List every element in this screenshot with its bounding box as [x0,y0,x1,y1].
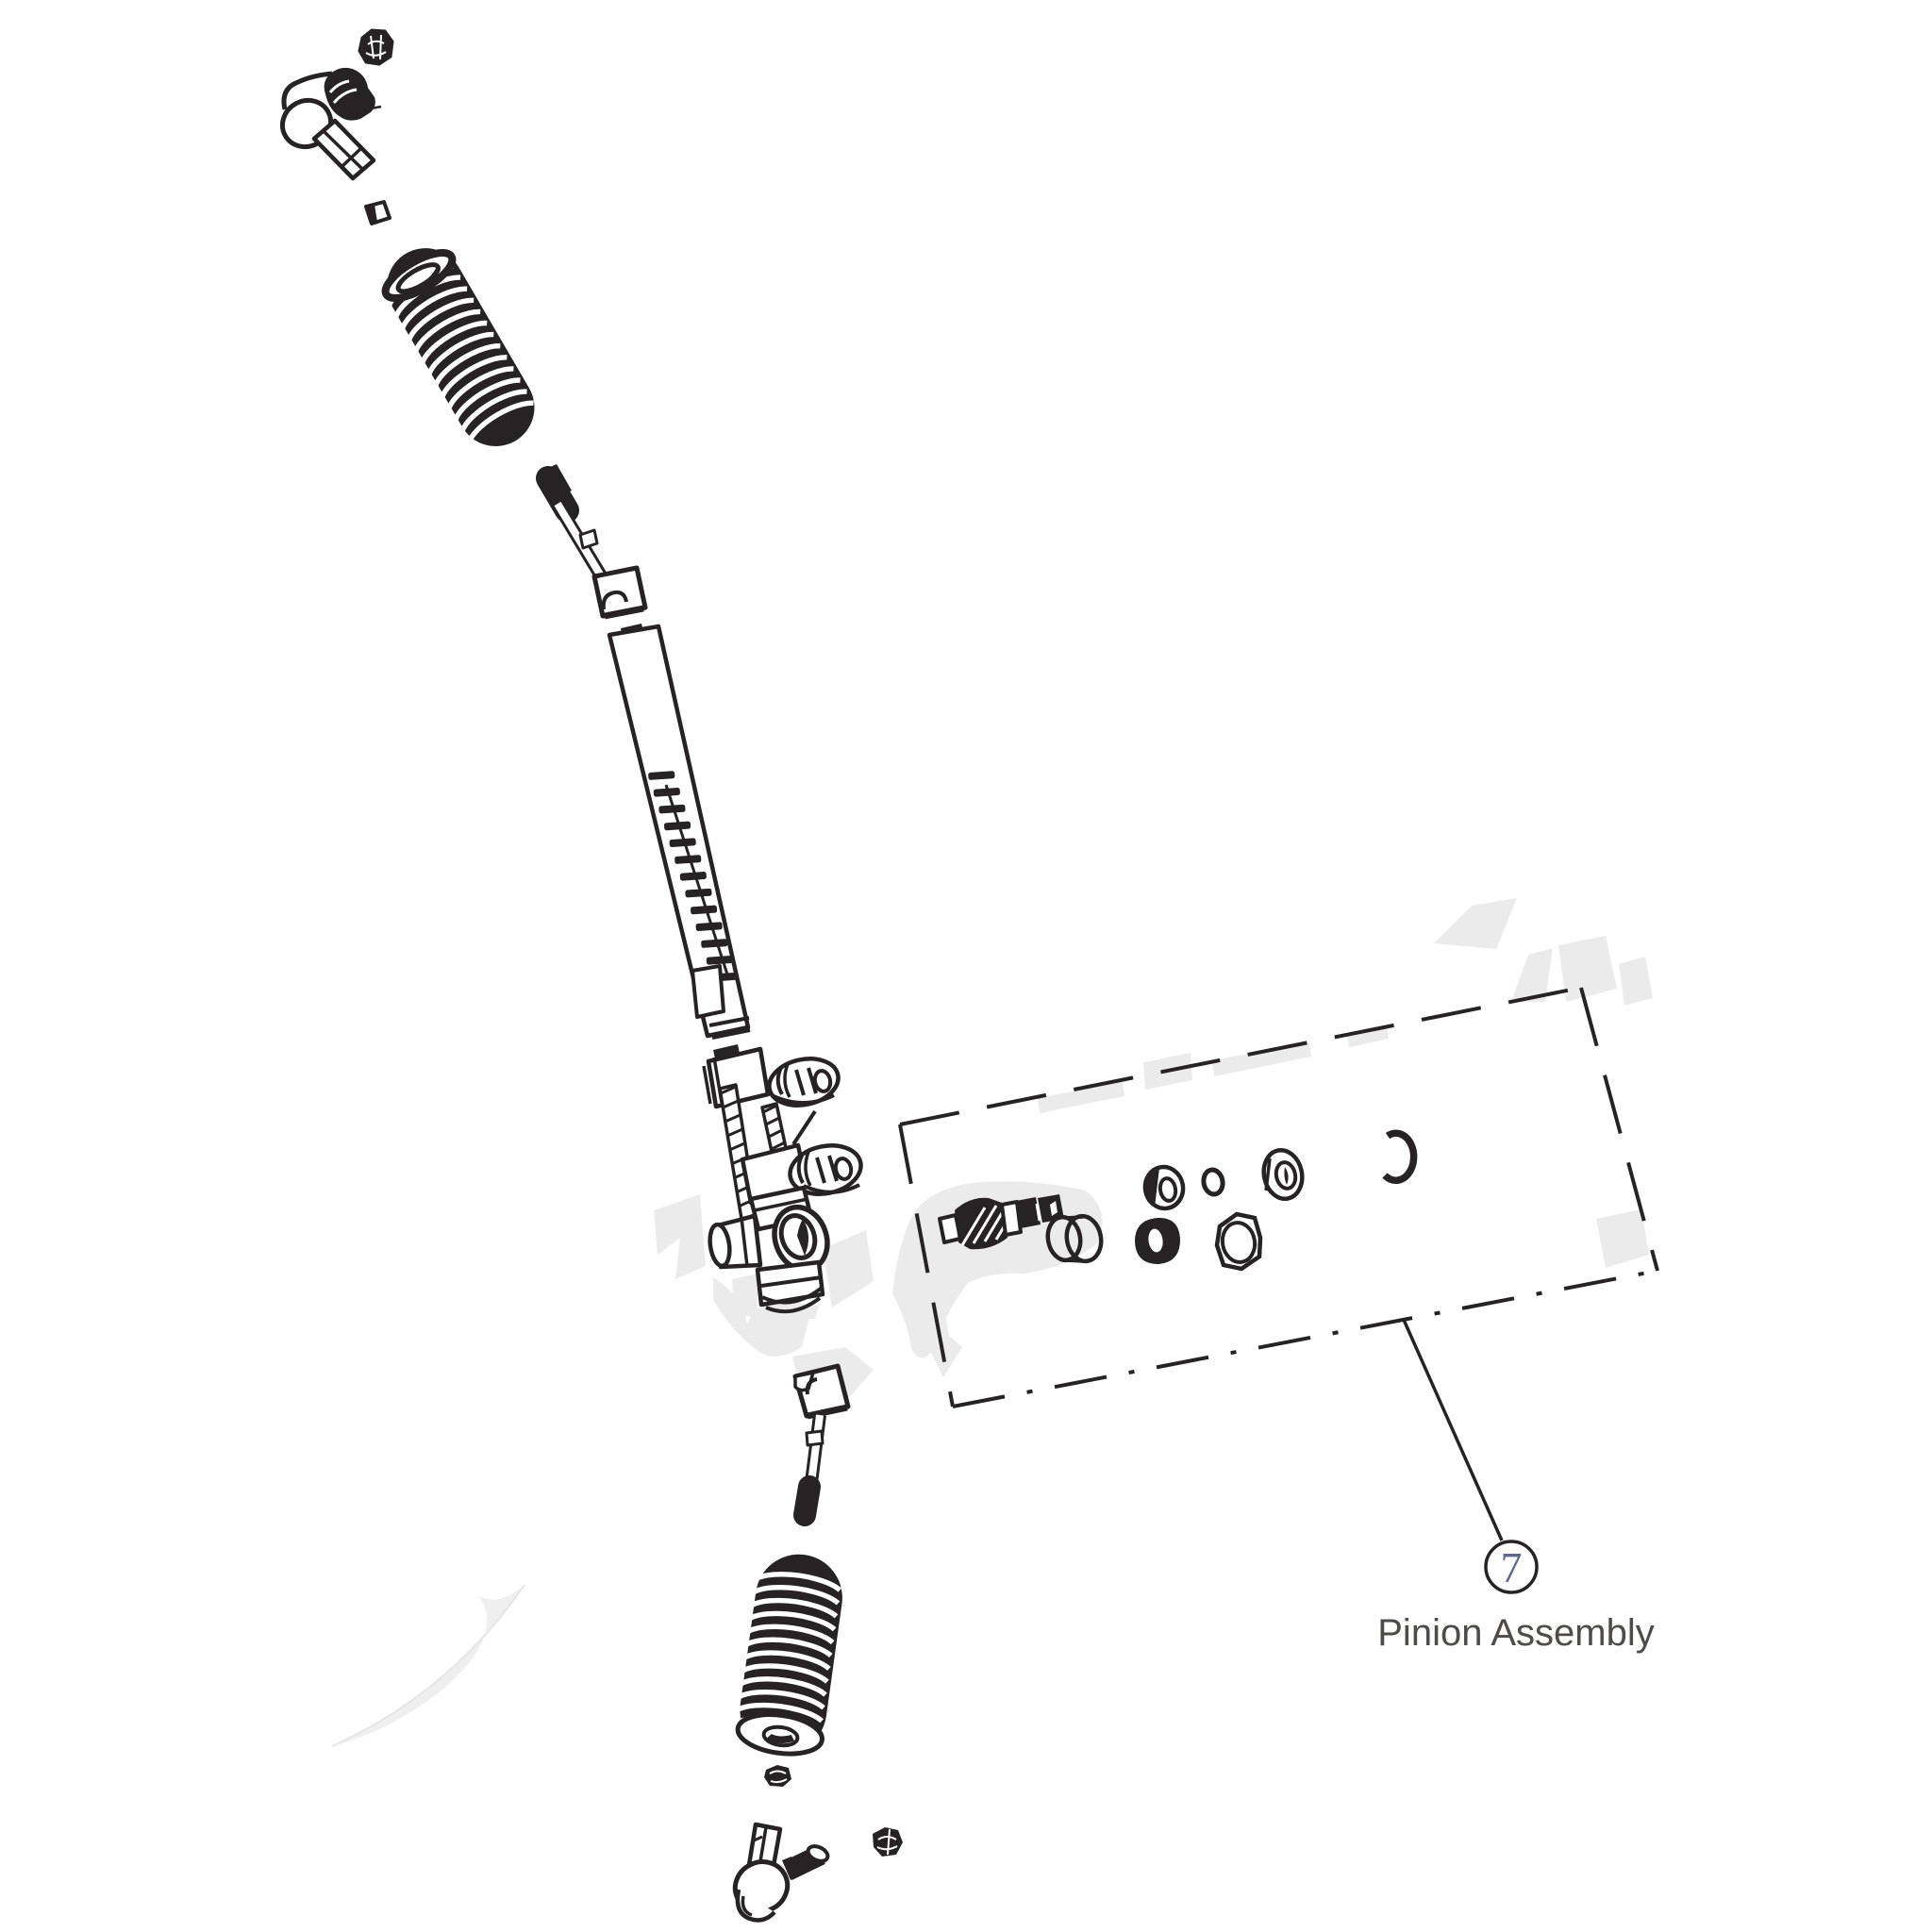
svg-text:7: 7 [1501,1543,1523,1591]
svg-text:Pinion Assembly: Pinion Assembly [1377,1612,1654,1654]
